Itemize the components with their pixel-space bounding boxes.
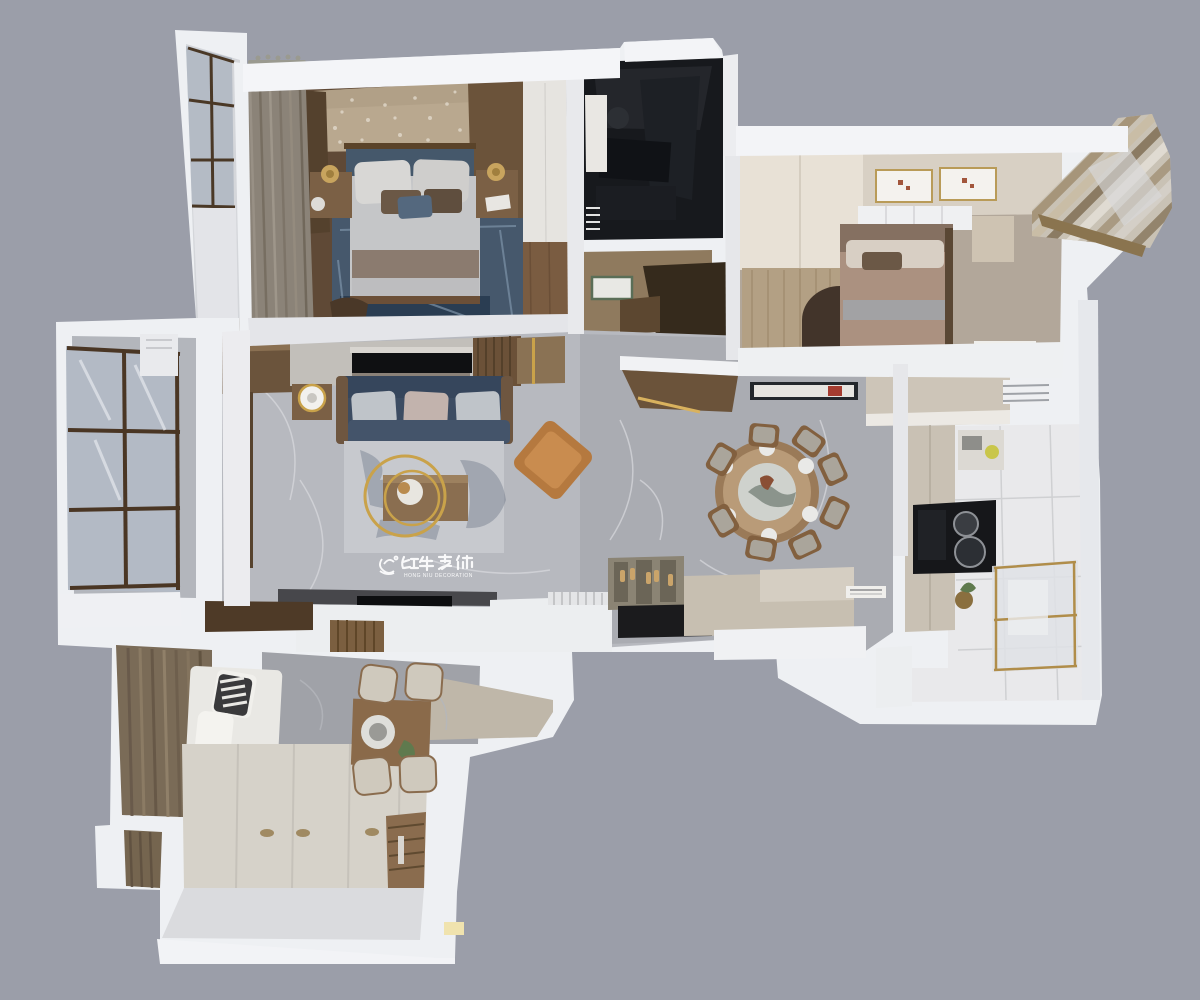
- svg-text:HONG NIU DECORATION: HONG NIU DECORATION: [404, 573, 473, 579]
